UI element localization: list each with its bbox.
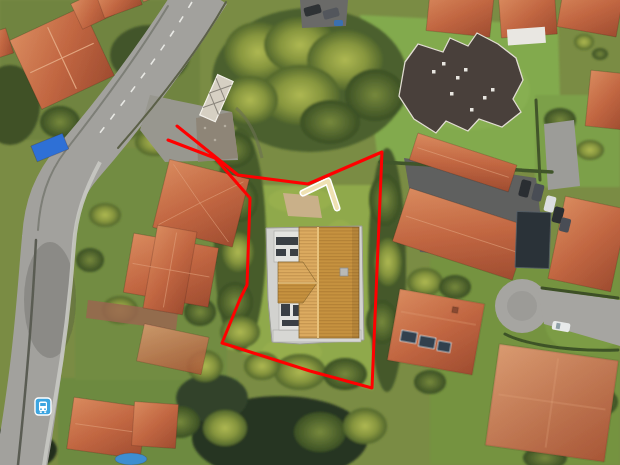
satellite-map[interactable] (0, 0, 620, 465)
flat-roof-building (515, 211, 551, 268)
building-wall (274, 231, 300, 262)
skylight (437, 341, 452, 353)
house-roof (585, 70, 620, 130)
house-roof (485, 344, 618, 462)
aerial-map-view[interactable] (0, 0, 620, 465)
transit-stop-marker[interactable] (35, 398, 51, 415)
skylight (400, 330, 418, 344)
skylight (418, 335, 436, 349)
house-roof (387, 289, 484, 375)
proposed-building-render (266, 226, 364, 344)
roof-chimney (340, 268, 348, 276)
house-roof (426, 0, 494, 37)
house-roof (132, 402, 179, 449)
dirt-forecourt (283, 193, 322, 218)
swimming-pool (115, 453, 147, 465)
